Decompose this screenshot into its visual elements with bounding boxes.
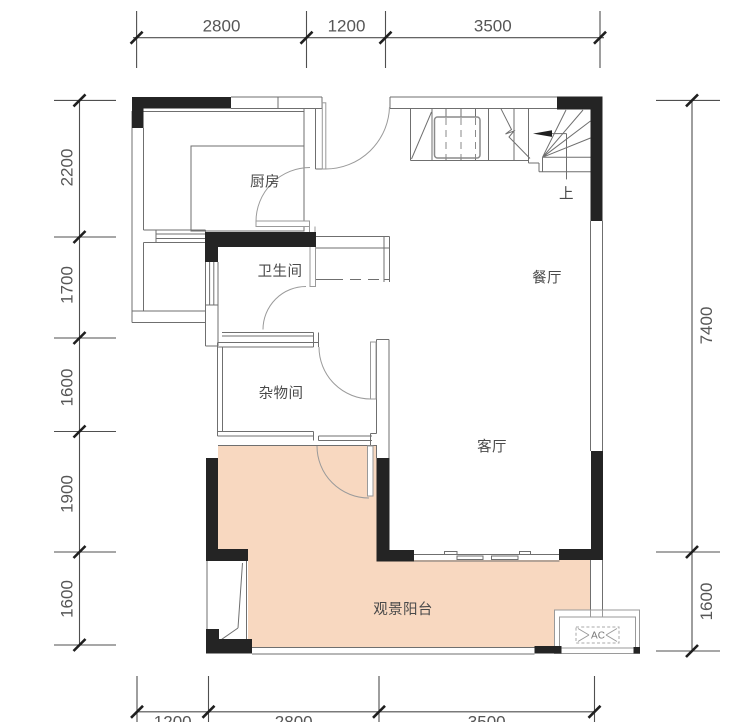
svg-text:1600: 1600 [697,583,716,621]
svg-text:观景阳台: 观景阳台 [373,601,433,618]
svg-text:杂物间: 杂物间 [259,385,304,402]
svg-text:厨房: 厨房 [250,174,280,191]
svg-text:1600: 1600 [58,369,77,407]
svg-text:上: 上 [559,186,574,203]
svg-text:1200: 1200 [328,17,366,36]
svg-text:2200: 2200 [58,149,77,187]
svg-text:2800: 2800 [275,713,313,722]
svg-text:1700: 1700 [58,266,77,304]
svg-text:2800: 2800 [203,17,241,36]
svg-text:1900: 1900 [58,475,77,513]
svg-text:1200: 1200 [154,713,192,722]
svg-text:卫生间: 卫生间 [258,263,303,280]
svg-text:3500: 3500 [468,713,506,722]
svg-text:1600: 1600 [58,580,77,618]
svg-text:3500: 3500 [474,17,512,36]
svg-text:7400: 7400 [697,307,716,345]
svg-text:餐厅: 餐厅 [532,270,562,287]
svg-text:客厅: 客厅 [477,439,507,456]
svg-text:AC: AC [591,631,605,642]
